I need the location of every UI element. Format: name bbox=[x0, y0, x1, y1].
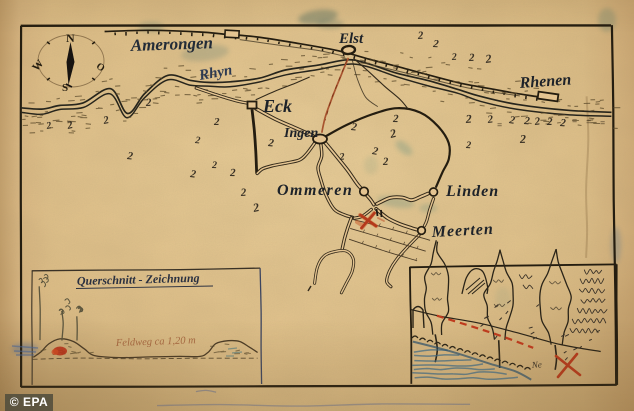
svg-text:=: = bbox=[600, 118, 605, 128]
svg-text:2: 2 bbox=[194, 135, 201, 147]
svg-text:Elst: Elst bbox=[338, 31, 364, 47]
svg-text:2: 2 bbox=[464, 112, 472, 126]
svg-text:2: 2 bbox=[546, 116, 553, 128]
svg-text:Ne: Ne bbox=[530, 359, 542, 370]
svg-text:Ingen: Ingen bbox=[283, 126, 318, 141]
svg-text:2: 2 bbox=[417, 30, 425, 42]
svg-text:2: 2 bbox=[392, 113, 399, 125]
svg-text:2: 2 bbox=[145, 97, 152, 109]
svg-text:=: = bbox=[586, 117, 591, 127]
svg-text:=: = bbox=[497, 120, 502, 130]
svg-text:Meerten: Meerten bbox=[430, 221, 494, 241]
svg-text:2: 2 bbox=[468, 52, 475, 64]
svg-text:Eck: Eck bbox=[262, 96, 292, 116]
svg-text:2: 2 bbox=[450, 52, 457, 63]
svg-text:Amerongen: Amerongen bbox=[129, 33, 213, 55]
svg-text:Linden: Linden bbox=[445, 183, 499, 200]
svg-text:=: = bbox=[572, 116, 577, 126]
svg-text:Ommeren: Ommeren bbox=[277, 182, 353, 199]
svg-text:2: 2 bbox=[229, 167, 236, 179]
svg-text:2: 2 bbox=[382, 156, 389, 168]
svg-text:2: 2 bbox=[211, 160, 217, 171]
svg-text:2: 2 bbox=[213, 116, 220, 128]
svg-text:2: 2 bbox=[465, 140, 472, 151]
svg-text:2: 2 bbox=[519, 132, 526, 146]
